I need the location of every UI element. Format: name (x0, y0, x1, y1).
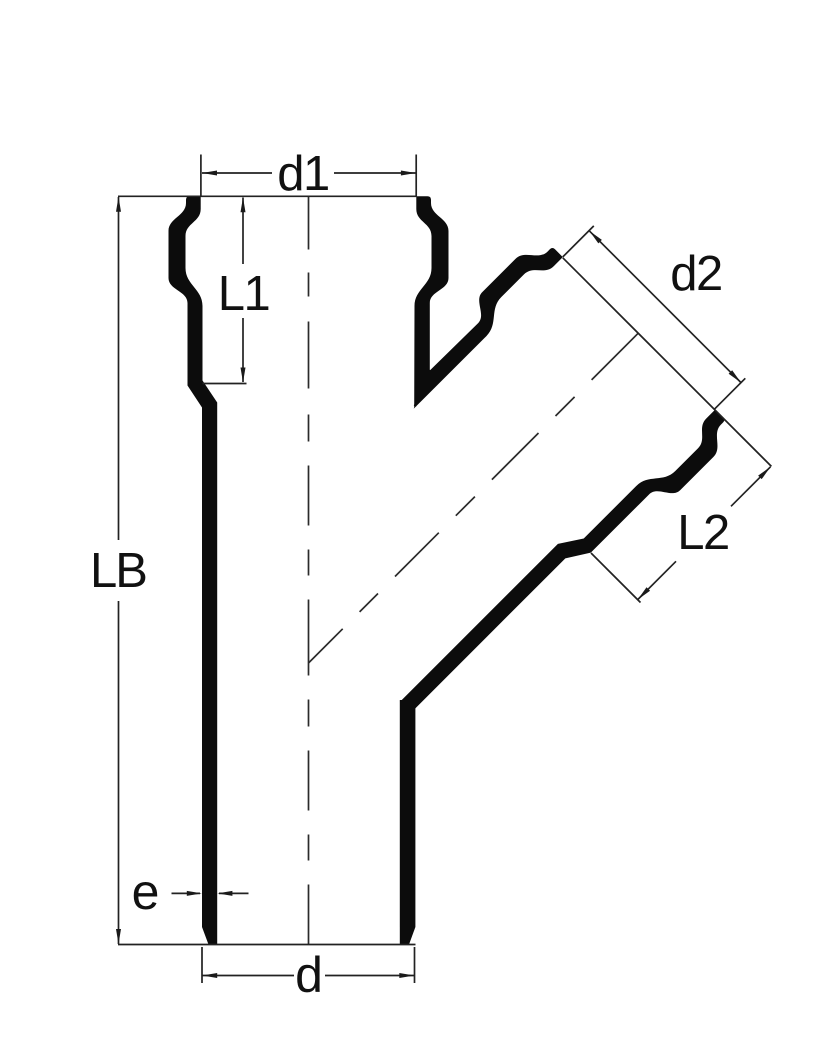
svg-text:e: e (132, 864, 160, 920)
svg-text:d: d (295, 947, 323, 1003)
svg-text:LB: LB (90, 544, 146, 598)
svg-text:L2: L2 (677, 506, 729, 560)
svg-text:L1: L1 (218, 267, 270, 321)
svg-text:d2: d2 (670, 247, 722, 301)
svg-text:d1: d1 (277, 147, 329, 201)
